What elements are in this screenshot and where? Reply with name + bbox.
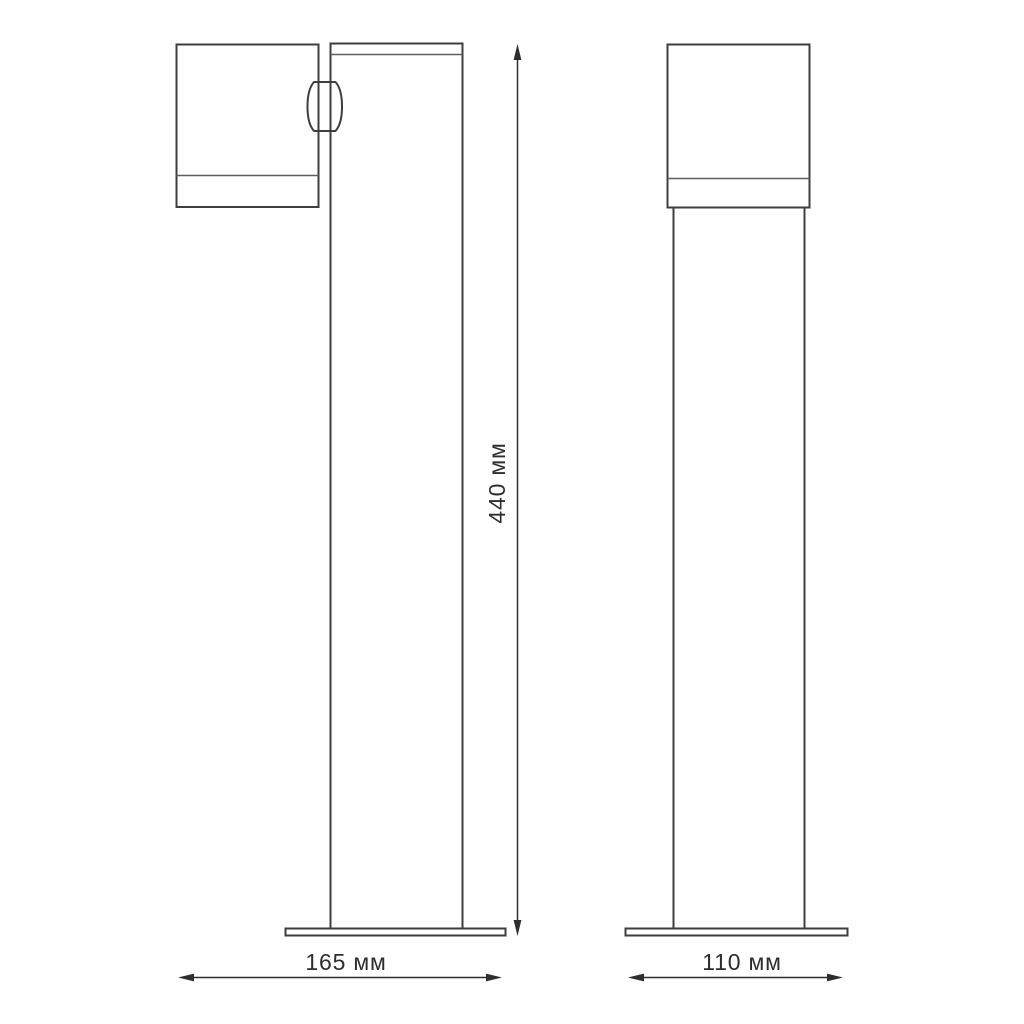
depth-dimension: 165 мм: [178, 949, 502, 981]
width-arrow-right-icon: [827, 974, 843, 982]
side-lamp-head-outline: [177, 45, 319, 208]
depth-arrow-right-icon: [486, 974, 502, 982]
width-dimension: 110 мм: [628, 949, 843, 981]
height-dimension: 440 мм: [484, 44, 521, 936]
height-arrow-up-icon: [514, 44, 522, 60]
height-dimension-label: 440 мм: [484, 442, 510, 523]
bollard-light-technical-drawing: 440 мм 165 мм 110 мм: [0, 0, 1024, 1024]
front-pole-outline: [674, 208, 805, 929]
side-base-plate: [286, 929, 506, 936]
depth-arrow-left-icon: [178, 974, 194, 982]
front-view: [626, 45, 848, 936]
front-lamp-head-outline: [668, 45, 810, 208]
depth-dimension-label: 165 мм: [305, 949, 386, 975]
front-base-plate: [626, 929, 848, 936]
side-hinge-knob: [308, 82, 343, 131]
side-view: [177, 44, 506, 936]
width-dimension-label: 110 мм: [702, 949, 781, 975]
side-pole-outline: [331, 44, 463, 929]
drawing-canvas: 440 мм 165 мм 110 мм: [0, 0, 1024, 1024]
width-arrow-left-icon: [628, 974, 644, 982]
height-arrow-down-icon: [514, 920, 522, 936]
